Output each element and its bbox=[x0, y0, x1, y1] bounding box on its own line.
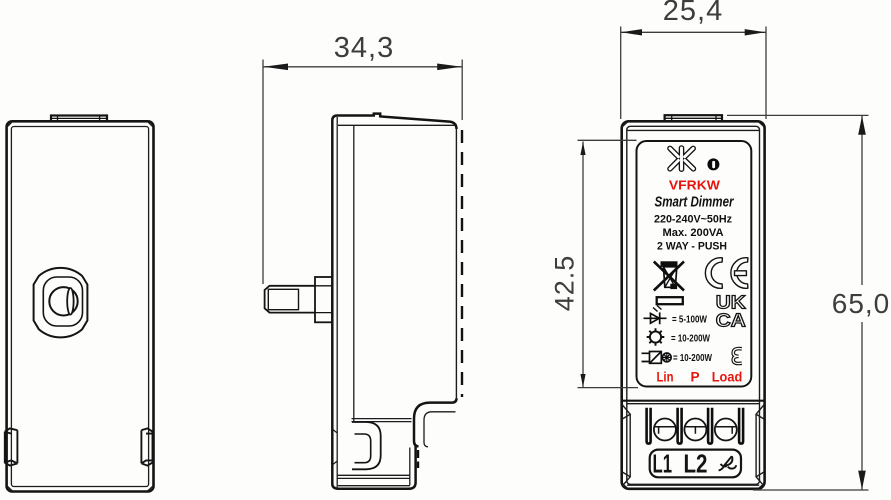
svg-text:Load: Load bbox=[712, 369, 743, 384]
svg-text:L1: L1 bbox=[653, 449, 673, 479]
svg-text:CA: CA bbox=[716, 310, 746, 331]
svg-text:Smart Dimmer: Smart Dimmer bbox=[655, 194, 735, 211]
svg-text:220-240V~50Hz: 220-240V~50Hz bbox=[654, 213, 732, 225]
svg-text:= 10-200W: = 10-200W bbox=[671, 332, 710, 344]
svg-text:65,0: 65,0 bbox=[832, 288, 891, 319]
svg-text:Lin: Lin bbox=[657, 369, 674, 384]
svg-text:Max. 200VA: Max. 200VA bbox=[663, 227, 724, 239]
svg-text:34,3: 34,3 bbox=[334, 32, 394, 64]
svg-text:42.5: 42.5 bbox=[550, 255, 580, 312]
svg-text:2 WAY - PUSH: 2 WAY - PUSH bbox=[657, 241, 727, 253]
svg-text:L2: L2 bbox=[684, 449, 708, 479]
svg-text:P: P bbox=[690, 369, 699, 384]
svg-text:= 10-200W: = 10-200W bbox=[673, 352, 712, 364]
svg-text:VFRKW: VFRKW bbox=[669, 179, 720, 193]
svg-text:25,4: 25,4 bbox=[663, 0, 723, 27]
svg-text:= 5-100W: = 5-100W bbox=[672, 314, 707, 326]
